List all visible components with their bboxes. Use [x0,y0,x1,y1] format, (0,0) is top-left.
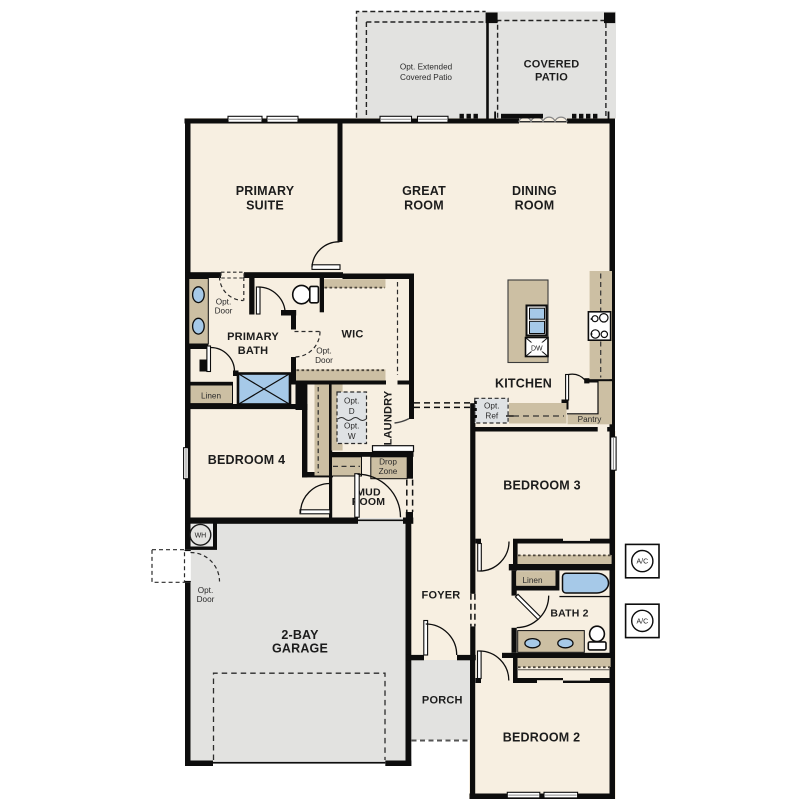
svg-text:W: W [348,432,356,441]
svg-text:DW: DW [531,346,543,353]
svg-text:BEDROOM 2: BEDROOM 2 [503,731,581,745]
svg-text:PORCH: PORCH [422,695,463,707]
svg-text:Opt.: Opt. [344,422,359,431]
svg-text:BEDROOM 4: BEDROOM 4 [208,453,286,467]
svg-text:Opt.: Opt. [216,298,231,307]
svg-text:A/C: A/C [636,618,648,625]
svg-text:DINING: DINING [512,184,557,198]
svg-text:D: D [349,407,355,416]
svg-text:Zone: Zone [379,467,398,476]
svg-text:BATH 2: BATH 2 [550,608,588,620]
svg-text:ROOM: ROOM [515,199,555,213]
svg-text:Opt.: Opt. [344,397,359,406]
svg-text:Pantry: Pantry [578,415,603,424]
svg-text:BEDROOM 3: BEDROOM 3 [503,479,581,493]
svg-text:FOYER: FOYER [422,590,461,602]
svg-text:WH: WH [195,532,207,539]
svg-text:A/C: A/C [636,559,648,566]
svg-text:Opt.: Opt. [484,402,499,411]
svg-text:Door: Door [215,307,233,316]
svg-text:GARAGE: GARAGE [272,642,328,656]
svg-text:LAUNDRY: LAUNDRY [383,390,395,445]
svg-text:Drop: Drop [379,458,397,467]
svg-text:Door: Door [197,595,215,604]
svg-text:BATH: BATH [238,345,269,357]
svg-text:Covered Patio: Covered Patio [400,73,452,82]
svg-text:ROOM: ROOM [404,199,444,213]
svg-text:Opt.: Opt. [198,586,213,595]
svg-text:PRIMARY: PRIMARY [236,184,295,198]
svg-text:Linen: Linen [201,392,221,401]
svg-text:WIC: WIC [342,329,364,341]
svg-text:SUITE: SUITE [246,199,284,213]
svg-text:GREAT: GREAT [402,184,446,198]
svg-text:Linen: Linen [522,576,542,585]
svg-text:Opt. Extended: Opt. Extended [400,63,453,72]
svg-text:Ref: Ref [485,412,498,421]
svg-text:PRIMARY: PRIMARY [227,331,279,343]
svg-text:KITCHEN: KITCHEN [495,377,552,391]
svg-text:COVERED: COVERED [524,59,580,71]
svg-text:Door: Door [315,356,333,365]
svg-text:2-BAY: 2-BAY [281,628,319,642]
svg-text:PATIO: PATIO [535,72,568,84]
svg-text:Opt.: Opt. [316,347,331,356]
